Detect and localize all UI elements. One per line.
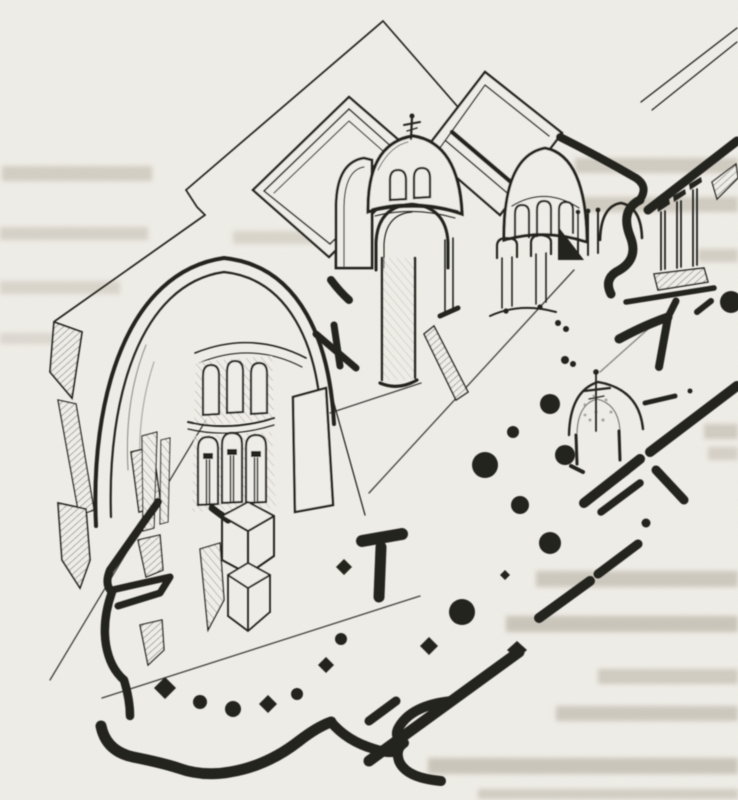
church-axonometric-drawing <box>0 0 738 800</box>
scanned-book-figure <box>0 0 738 800</box>
scan-grain-overlay <box>0 0 738 800</box>
